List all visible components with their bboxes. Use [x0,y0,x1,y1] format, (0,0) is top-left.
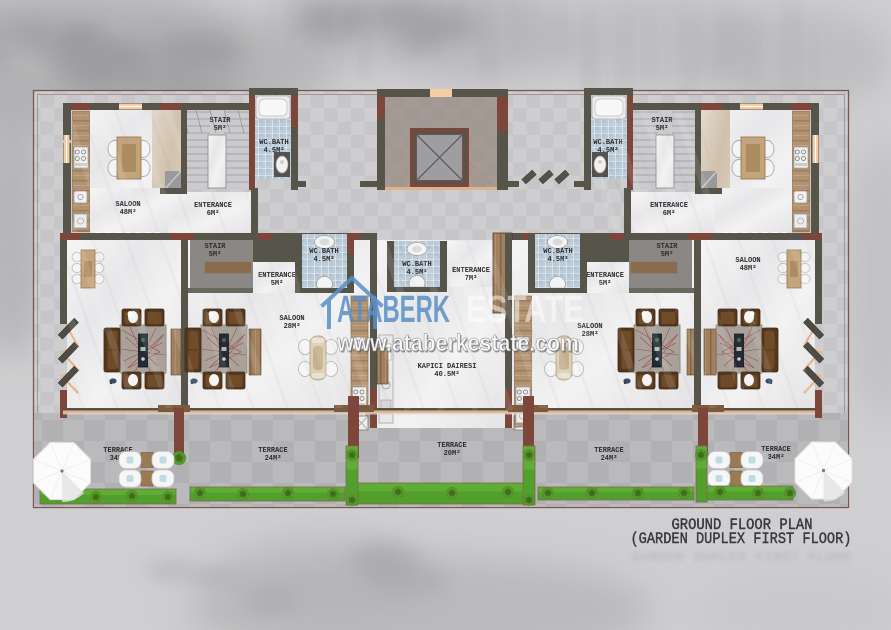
svg-text:24M²: 24M² [265,455,282,463]
svg-text:STAIR: STAIR [656,243,678,251]
svg-text:TERRACE: TERRACE [594,447,623,455]
svg-text:5M²: 5M² [209,251,222,259]
svg-text:STAIR: STAIR [209,117,231,125]
svg-text:GARDEN DUPLEX FIRST FLOOR: GARDEN DUPLEX FIRST FLOOR [632,550,853,566]
svg-text:4.5M²: 4.5M² [263,147,284,155]
svg-text:4.5M²: 4.5M² [313,256,334,264]
svg-text:TERRACE: TERRACE [437,442,466,450]
svg-text:TERRACE: TERRACE [761,446,790,454]
svg-text:5M²: 5M² [214,125,227,133]
svg-text:ESTATE: ESTATE [466,289,584,331]
svg-text:ENTERANCE: ENTERANCE [650,202,688,210]
svg-text:WC.BATH: WC.BATH [309,248,338,256]
svg-text:20M²: 20M² [444,450,461,458]
svg-text:WC.BATH: WC.BATH [259,139,288,147]
svg-text:WC.BATH: WC.BATH [543,248,572,256]
svg-text:5M²: 5M² [661,251,674,259]
svg-text:4.5M²: 4.5M² [547,256,568,264]
svg-text:www.ataberkestate.com: www.ataberkestate.com [336,330,579,357]
svg-text:(GARDEN DUPLEX FIRST FLOOR): (GARDEN DUPLEX FIRST FLOOR) [631,530,852,548]
svg-text:ENTERANCE: ENTERANCE [586,272,624,280]
svg-text:TERRACE: TERRACE [258,447,287,455]
svg-text:6M²: 6M² [663,210,676,218]
svg-text:34M²: 34M² [768,454,785,462]
svg-text:24M²: 24M² [601,455,618,463]
svg-text:STAIR: STAIR [204,243,226,251]
svg-text:ATABERK: ATABERK [337,289,450,331]
